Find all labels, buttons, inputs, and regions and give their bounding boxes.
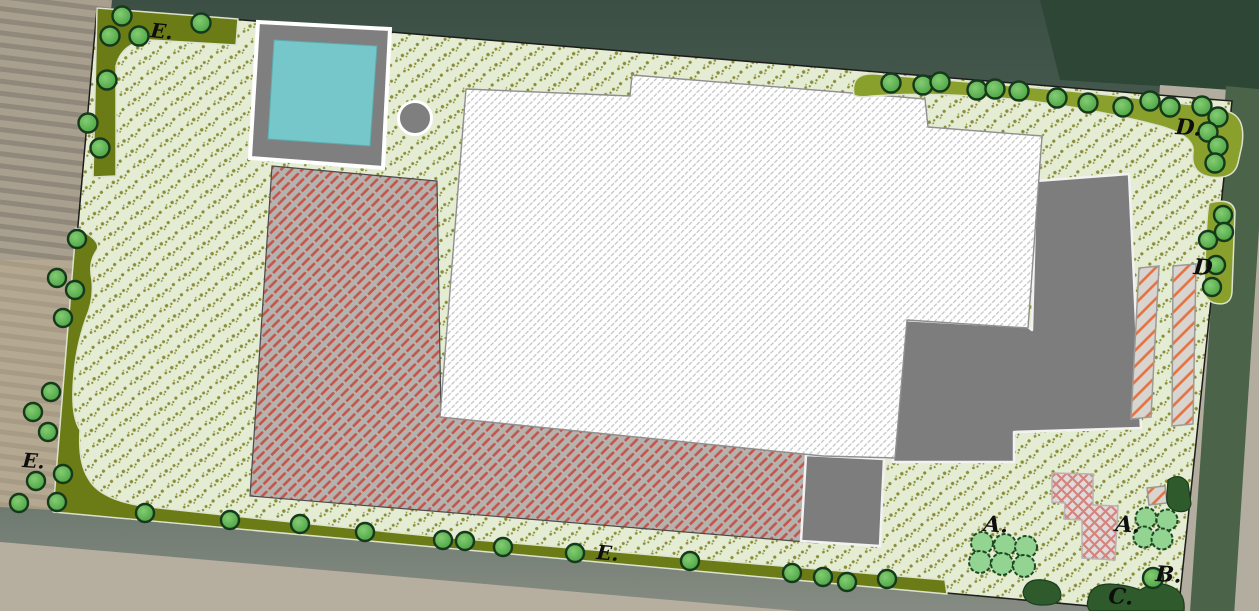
tree-symbol xyxy=(931,73,950,92)
shrub-symbol xyxy=(969,551,991,573)
tree-symbol xyxy=(494,538,512,556)
tree-symbol xyxy=(291,515,309,533)
shrub-symbol xyxy=(1015,536,1037,558)
label-a-left: A. xyxy=(981,511,1009,539)
tree-symbol xyxy=(1214,206,1232,224)
label-b: B. xyxy=(1154,561,1183,589)
label-c: C. xyxy=(1108,583,1135,611)
tree-symbol xyxy=(27,472,45,490)
tree-symbol xyxy=(130,27,149,46)
tree-symbol xyxy=(356,523,374,541)
label-d-right: D xyxy=(1192,254,1214,281)
tree-symbol xyxy=(783,564,801,582)
tree-symbol xyxy=(1048,89,1067,108)
tree-symbol xyxy=(101,27,120,46)
site-plan: E. E. E. D. D A. A. B. C. xyxy=(10,7,1243,611)
tree-symbol xyxy=(434,531,452,549)
tree-symbol xyxy=(24,403,42,421)
tree-symbol xyxy=(681,552,699,570)
tree-symbol xyxy=(10,494,28,512)
pool-water xyxy=(268,40,377,146)
shrub-symbol xyxy=(1157,510,1178,531)
tree-symbol xyxy=(54,309,72,327)
shrub-symbol xyxy=(1013,555,1035,577)
shrub-mass-c-left xyxy=(1023,580,1061,605)
tree-symbol xyxy=(54,465,72,483)
tree-symbol xyxy=(136,504,154,522)
tree-symbol xyxy=(914,76,933,95)
label-e-top-left: E. xyxy=(148,18,174,44)
tree-symbol xyxy=(39,423,57,441)
tree-symbol xyxy=(1079,94,1098,113)
label-a-right: A. xyxy=(1113,511,1141,539)
shrub-symbol xyxy=(1152,529,1173,550)
tree-symbol xyxy=(1209,137,1228,156)
tree-symbol xyxy=(1206,154,1225,173)
tree-symbol xyxy=(814,568,832,586)
building-gray-small xyxy=(801,455,884,546)
label-d-top-right: D. xyxy=(1174,114,1203,142)
landscape-plan-screenshot: E. E. E. D. D A. A. B. C. xyxy=(0,0,1259,611)
tree-symbol xyxy=(1215,223,1233,241)
tree-symbol xyxy=(48,269,66,287)
label-e-left: E. xyxy=(21,448,46,474)
aerial-trees-top-right xyxy=(1040,0,1259,92)
tree-symbol xyxy=(48,493,66,511)
tree-symbol xyxy=(66,281,84,299)
tree-symbol xyxy=(456,532,474,550)
tree-symbol xyxy=(221,511,239,529)
tree-symbol xyxy=(968,81,987,100)
shrubs-a-left xyxy=(969,532,1037,577)
round-paved-feature xyxy=(399,102,432,135)
tree-symbol xyxy=(68,230,86,248)
square-orange-hatched xyxy=(1147,486,1167,505)
tree-symbol xyxy=(986,80,1005,99)
tree-symbol xyxy=(42,383,60,401)
tree-symbol xyxy=(882,74,901,93)
landscape-plan-canvas: E. E. E. D. D A. A. B. C. xyxy=(0,0,1259,611)
tree-symbol xyxy=(91,139,110,158)
tree-symbol xyxy=(1141,92,1160,111)
shrub-symbol xyxy=(991,553,1013,575)
tree-symbol xyxy=(838,573,856,591)
tree-symbol xyxy=(1114,98,1133,117)
tree-symbol xyxy=(878,570,896,588)
strip-orange-hatched-right xyxy=(1172,264,1196,426)
tree-symbol xyxy=(113,7,132,26)
tree-symbol xyxy=(98,71,117,90)
tree-symbol xyxy=(566,544,584,562)
label-e-bottom: E. xyxy=(595,540,620,566)
tree-symbol xyxy=(192,14,211,33)
tree-symbol xyxy=(79,114,98,133)
shrub-mass-right-edge xyxy=(1167,477,1191,512)
tree-symbol xyxy=(1010,82,1029,101)
